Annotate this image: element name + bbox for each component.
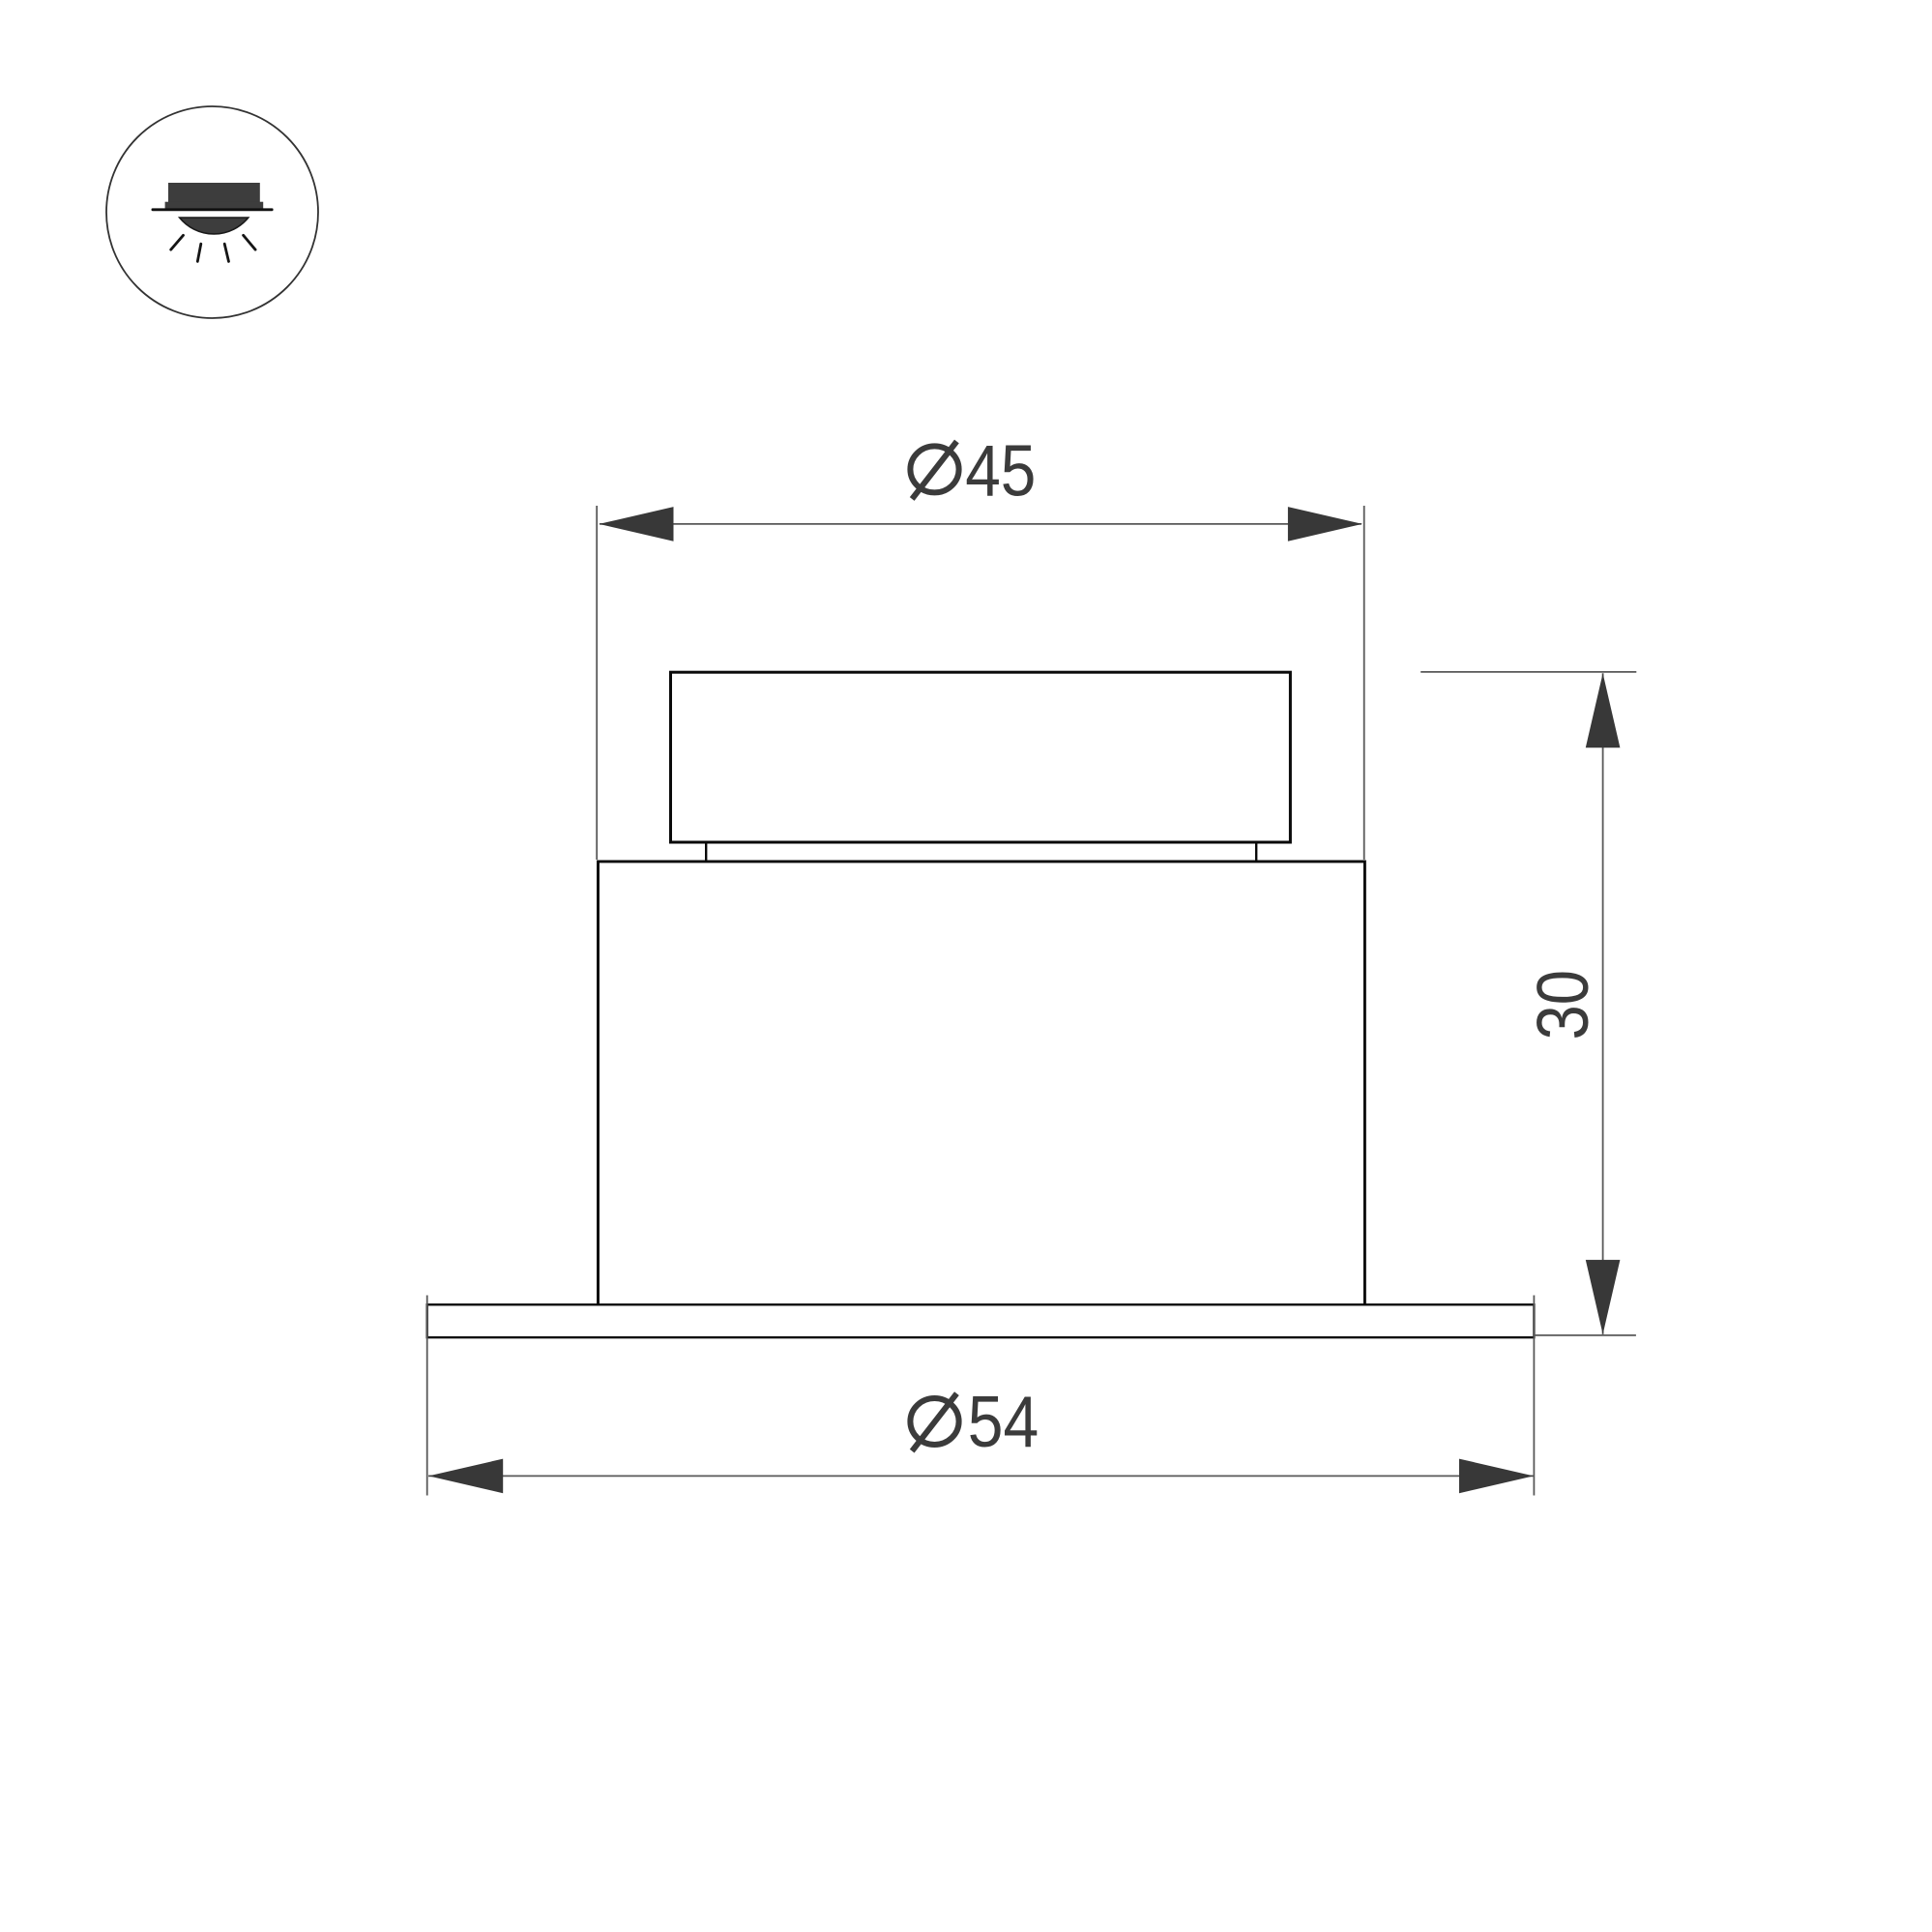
svg-text:45: 45 [965,430,1036,512]
svg-text:54: 54 [968,1381,1039,1462]
svg-text:30: 30 [1522,970,1603,1040]
